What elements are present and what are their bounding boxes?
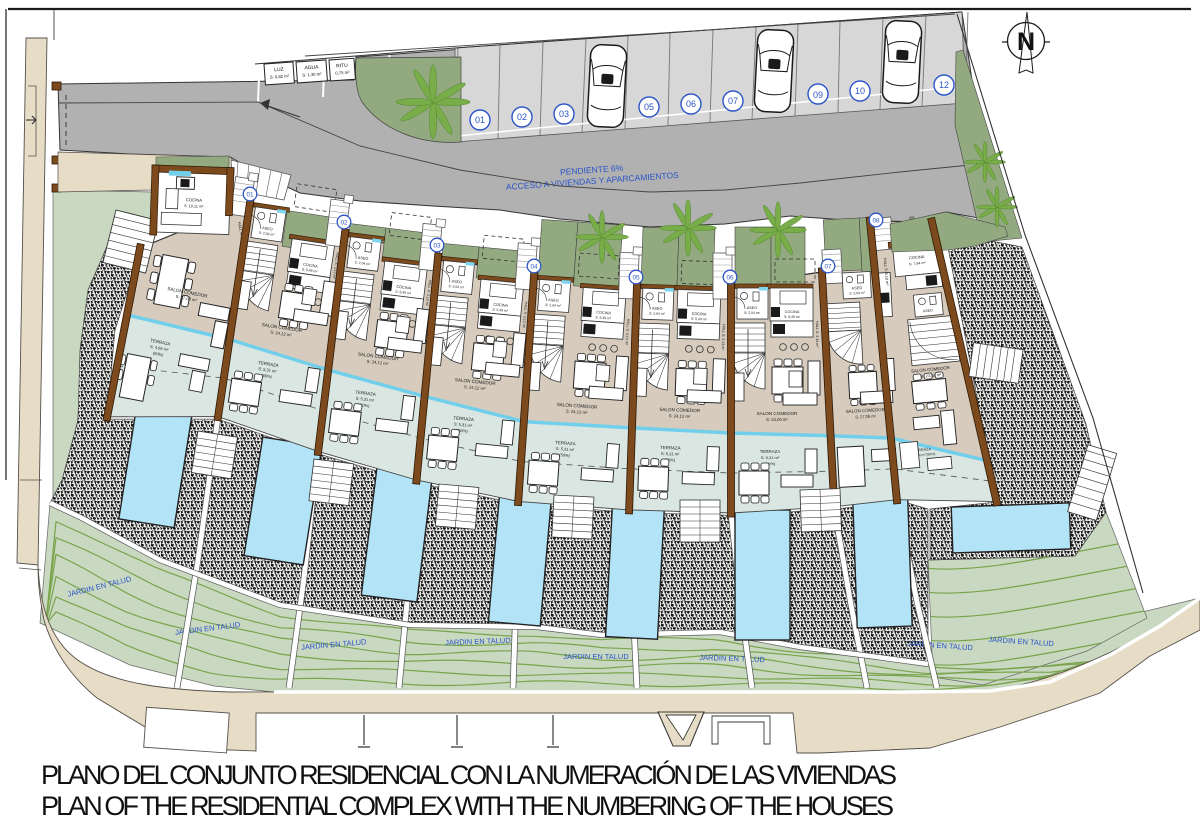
svg-text:S: 24,00 m²: S: 24,00 m²	[766, 417, 788, 422]
svg-text:01: 01	[246, 191, 254, 198]
svg-text:JARDIN EN TALUD: JARDIN EN TALUD	[563, 652, 629, 661]
svg-text:03: 03	[559, 109, 569, 119]
svg-text:S: 2,04 m²: S: 2,04 m²	[744, 311, 761, 315]
svg-text:TERRAZA: TERRAZA	[660, 445, 681, 451]
svg-text:0,75 m²: 0,75 m²	[335, 70, 350, 76]
svg-text:RITU: RITU	[336, 63, 348, 70]
svg-text:09: 09	[813, 90, 823, 100]
svg-text:S: 24,12 m²: S: 24,12 m²	[669, 413, 691, 419]
svg-text:COCINA: COCINA	[692, 312, 707, 317]
svg-text:S: 5,31 m²: S: 5,31 m²	[661, 451, 680, 457]
svg-text:S: 5,49 m²: S: 5,49 m²	[691, 317, 708, 322]
svg-text:01: 01	[475, 115, 485, 125]
svg-text:AGUA: AGUA	[304, 64, 319, 71]
svg-text:05: 05	[644, 102, 654, 112]
svg-text:LUZ: LUZ	[274, 67, 284, 74]
svg-text:(50%): (50%)	[559, 452, 571, 458]
svg-text:06: 06	[686, 99, 696, 109]
svg-text:COCINA: COCINA	[186, 197, 203, 203]
svg-text:12: 12	[939, 80, 949, 90]
svg-text:S: 5,31 m²: S: 5,31 m²	[761, 455, 780, 460]
svg-text:S: 5,49 m²: S: 5,49 m²	[784, 315, 801, 319]
svg-text:ASEO: ASEO	[548, 298, 559, 303]
svg-text:07: 07	[728, 96, 738, 106]
svg-text:PLANO DEL CONJUNTO RESIDENCIAL: PLANO DEL CONJUNTO RESIDENCIAL CON LA NU…	[41, 759, 897, 790]
svg-text:02: 02	[517, 112, 527, 122]
svg-text:04: 04	[530, 263, 538, 270]
svg-text:08: 08	[872, 217, 880, 224]
svg-text:02: 02	[340, 219, 348, 226]
svg-text:TERRAZA: TERRAZA	[760, 449, 781, 454]
svg-text:07: 07	[824, 263, 832, 270]
svg-text:PLAN OF THE RESIDENTIAL COMPLE: PLAN OF THE RESIDENTIAL COMPLEX WITH THE…	[41, 791, 894, 821]
svg-text:COCINA: COCINA	[785, 310, 800, 314]
svg-text:05: 05	[632, 274, 640, 281]
svg-text:S: 10,11 m²: S: 10,11 m²	[184, 204, 204, 209]
svg-text:06: 06	[726, 274, 734, 281]
svg-text:ASEO: ASEO	[747, 306, 758, 310]
svg-text:10: 10	[855, 86, 865, 96]
svg-text:HALL S: 3,13 m²: HALL S: 3,13 m²	[815, 321, 819, 348]
svg-text:N: N	[1017, 28, 1035, 56]
svg-text:S: 2,04 m²: S: 2,04 m²	[649, 311, 666, 316]
svg-text:ASEO: ASEO	[652, 307, 663, 311]
svg-text:SALON COMEDOR: SALON COMEDOR	[757, 411, 799, 416]
svg-text:03: 03	[433, 242, 441, 249]
svg-text:ASEO: ASEO	[852, 286, 863, 291]
